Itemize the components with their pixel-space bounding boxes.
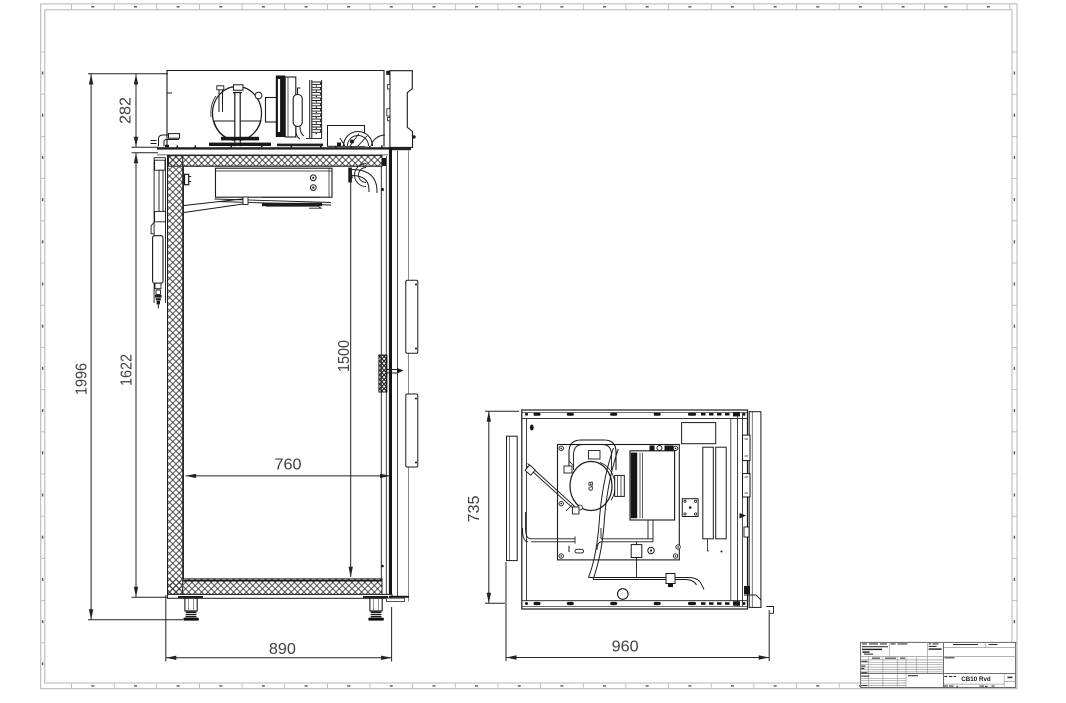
svg-text:1622: 1622 (119, 354, 136, 386)
svg-text:282: 282 (118, 97, 135, 124)
svg-text:GB: GB (588, 481, 595, 491)
svg-text:890: 890 (269, 641, 296, 658)
svg-text:1500: 1500 (336, 340, 353, 372)
svg-text:960: 960 (612, 639, 639, 656)
svg-text:CB10 Rvd: CB10 Rvd (961, 676, 991, 683)
svg-text:760: 760 (275, 457, 302, 474)
svg-text:735: 735 (466, 495, 483, 522)
svg-text:1996: 1996 (74, 363, 91, 395)
